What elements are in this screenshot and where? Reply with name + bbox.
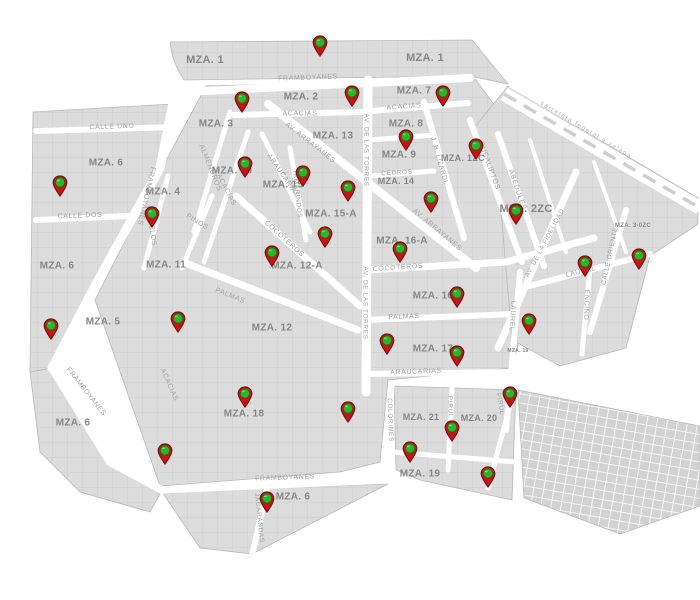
map-pin-icon[interactable] bbox=[312, 35, 328, 57]
map-pin-icon[interactable] bbox=[52, 175, 68, 197]
block-label: MZA. 16 bbox=[413, 291, 453, 302]
street-label: FRAMBOYANES bbox=[278, 73, 338, 82]
street-label: ACACIAS bbox=[386, 102, 421, 111]
block-label: MZA. 2 bbox=[284, 92, 319, 103]
street-label: COCOTEROS bbox=[373, 263, 424, 274]
street-label: PINOS bbox=[185, 212, 210, 231]
street-label: CALLE DOS bbox=[58, 212, 103, 221]
street-label: PIRUL bbox=[446, 396, 454, 418]
street-label: AV. DE LA FIDELIDAD bbox=[524, 207, 566, 278]
map-pin-icon[interactable] bbox=[317, 226, 333, 248]
map-pin-icon[interactable] bbox=[43, 318, 59, 340]
map-pin-icon[interactable] bbox=[521, 313, 537, 335]
map-pin-icon[interactable] bbox=[259, 491, 275, 513]
map-pin-icon[interactable] bbox=[402, 441, 418, 463]
street-label: FRAMBOYANES bbox=[255, 473, 315, 482]
block-label: MZA. 7 bbox=[397, 86, 432, 97]
map-pin-icon[interactable] bbox=[423, 191, 439, 213]
block-label: MZA. 19 bbox=[400, 469, 440, 480]
street-label: CALLE UNO bbox=[89, 123, 134, 132]
label-layer: FRAMBOYANESACACIASACACIASCALLE UNOCALLE … bbox=[0, 0, 700, 600]
block-label: MZA. 14 bbox=[378, 176, 415, 186]
map: FRAMBOYANESACACIASACACIASCALLE UNOCALLE … bbox=[0, 0, 700, 600]
block-label: MZA. 9 bbox=[382, 150, 417, 161]
map-pin-icon[interactable] bbox=[398, 129, 414, 151]
map-pin-icon[interactable] bbox=[435, 85, 451, 107]
block-label: MZA. 18 bbox=[224, 409, 264, 420]
block-label: MZA. 5 bbox=[86, 317, 121, 328]
street-label: ENCINO bbox=[582, 289, 590, 320]
map-pin-icon[interactable] bbox=[502, 386, 518, 408]
street-label: FRAMBOYANES bbox=[65, 366, 107, 417]
map-pin-icon[interactable] bbox=[449, 286, 465, 308]
block-label: MZA. 19 bbox=[507, 348, 528, 354]
block-label: MZA. 6 bbox=[56, 418, 91, 429]
block-label: MZA. 3-0ZC bbox=[615, 223, 651, 229]
map-pin-icon[interactable] bbox=[344, 85, 360, 107]
street-label: ACACIAS bbox=[283, 111, 318, 118]
map-pin-icon[interactable] bbox=[264, 245, 280, 267]
street-label: ARAUCARIAS bbox=[390, 368, 442, 377]
block-label: MZA. 6 bbox=[40, 261, 75, 272]
map-pin-icon[interactable] bbox=[379, 333, 395, 355]
block-label: MZA. 6 bbox=[276, 492, 311, 503]
block-label: MZA. 20 bbox=[461, 413, 498, 423]
street-label: PALMAS bbox=[388, 313, 420, 321]
map-pin-icon[interactable] bbox=[449, 345, 465, 367]
map-pin-icon[interactable] bbox=[340, 180, 356, 202]
map-pin-icon[interactable] bbox=[631, 248, 647, 270]
map-pin-icon[interactable] bbox=[144, 206, 160, 228]
street-label: CALLE ORIENTE bbox=[600, 226, 619, 285]
block-label: MZA. 21 bbox=[403, 412, 440, 422]
block-label: MZA. 12 bbox=[252, 323, 292, 334]
block-label: MZA. 13 bbox=[313, 131, 353, 142]
map-pin-icon[interactable] bbox=[237, 386, 253, 408]
map-pin-icon[interactable] bbox=[170, 311, 186, 333]
map-pin-icon[interactable] bbox=[444, 420, 460, 442]
block-label: MZA. 4 bbox=[146, 187, 181, 198]
map-pin-icon[interactable] bbox=[392, 241, 408, 263]
block-label: MZA. 1 bbox=[406, 52, 444, 64]
street-label: COLORINES bbox=[386, 398, 395, 442]
street-label: AV. DE LAS TORRES bbox=[363, 113, 370, 186]
street-label: AV. ARRAYANES bbox=[284, 121, 337, 164]
map-pin-icon[interactable] bbox=[234, 91, 250, 113]
street-label: PALMAS bbox=[214, 287, 246, 305]
map-pin-icon[interactable] bbox=[468, 138, 484, 160]
block-label: MZA. 1 bbox=[186, 54, 224, 66]
block-label: MZA. 11 bbox=[146, 260, 186, 271]
map-pin-icon[interactable] bbox=[340, 401, 356, 423]
map-pin-icon[interactable] bbox=[295, 165, 311, 187]
map-pin-icon[interactable] bbox=[577, 255, 593, 277]
map-pin-icon[interactable] bbox=[157, 443, 173, 465]
map-pin-icon[interactable] bbox=[237, 156, 253, 178]
block-label: MZA. 15-A bbox=[305, 209, 357, 220]
block-label: MZA. 3 bbox=[199, 119, 234, 130]
street-label: AV. DE LAS TORRES bbox=[362, 266, 369, 339]
block-label: MZA. 6 bbox=[89, 158, 124, 169]
block-label: MZA. 17 bbox=[413, 344, 453, 355]
map-pin-icon[interactable] bbox=[480, 466, 496, 488]
map-pin-icon[interactable] bbox=[508, 203, 524, 225]
street-label: LAUREL bbox=[507, 300, 516, 331]
highway-label: carretera federal a xalapa bbox=[539, 100, 633, 160]
street-label: ACACIAS bbox=[159, 368, 180, 403]
